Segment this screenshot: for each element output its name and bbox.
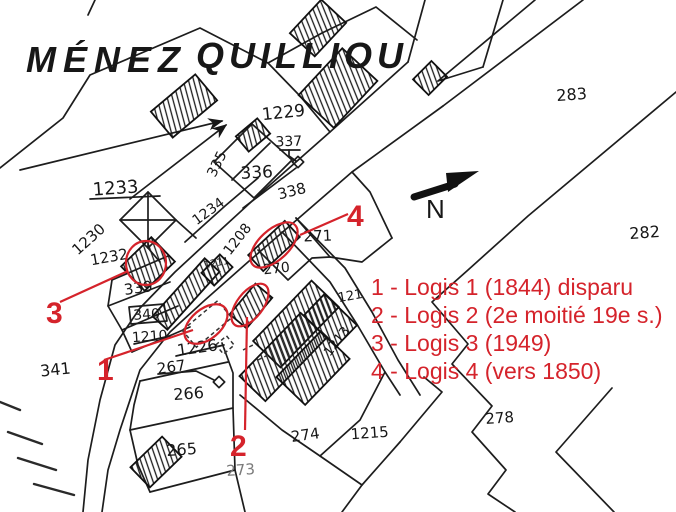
parcel-label-278: 278 (485, 408, 515, 428)
north-arrow-head-icon (446, 171, 479, 192)
north-arrow: N (414, 171, 479, 224)
parcel-label-271: 271 (303, 227, 332, 246)
map-title-part2: QUILLIOU (196, 35, 408, 76)
legend-line-1: 1 - Logis 1 (1844) disparu (371, 274, 633, 300)
parcel-label-1234: 1234 (190, 195, 228, 229)
map-title: MÉNEZ QUILLIOU (26, 35, 408, 80)
parcel-label-341: 341 (39, 358, 71, 380)
cadastral-map-screenshot: 1229 337 336 338 335 1233 1234 1230 1232… (0, 0, 676, 512)
parcel-label-335: 335 (204, 149, 230, 180)
parcel-label-1229: 1229 (261, 101, 306, 125)
parcel-label-121: 121 (337, 287, 364, 306)
legend-line-4: 4 - Logis 4 (vers 1850) (371, 358, 601, 384)
parcel-label-337: 337 (275, 134, 302, 151)
logis-2-leader-line (245, 317, 247, 430)
parcel-label-283: 283 (556, 84, 588, 105)
parcel-label-282: 282 (629, 222, 661, 243)
parcel-label-339: 339 (123, 277, 154, 299)
cadastral-map: 1229 337 336 338 335 1233 1234 1230 1232… (0, 0, 676, 512)
marker-3: 3 (46, 297, 63, 330)
parcel-label-267: 267 (156, 356, 187, 378)
marker-1: 1 (97, 354, 114, 387)
legend: 1 - Logis 1 (1844) disparu 2 - Logis 2 (… (371, 274, 662, 384)
marker-2: 2 (230, 430, 247, 463)
map-title-part1: MÉNEZ (26, 39, 187, 80)
legend-line-2: 2 - Logis 2 (2e moitié 19e s.) (371, 302, 662, 328)
parcel-label-266: 266 (173, 383, 205, 404)
north-label: N (426, 194, 445, 224)
parcel-label-265: 265 (166, 439, 198, 460)
marker-4: 4 (347, 200, 364, 233)
logis-3-leader-line (60, 271, 128, 302)
parcel-label-1215: 1215 (350, 423, 389, 444)
parcel-label-273: 273 (226, 460, 256, 480)
parcel-label-340: 340 (133, 306, 161, 324)
legend-line-3: 3 - Logis 3 (1949) (371, 330, 551, 356)
parcel-label-1233: 1233 (92, 176, 139, 200)
parcel-label-274: 274 (290, 424, 321, 446)
parcel-label-338: 338 (276, 179, 308, 203)
building-hatched (413, 61, 447, 95)
parcel-label-336: 336 (240, 162, 273, 184)
building-hatched (151, 74, 217, 137)
